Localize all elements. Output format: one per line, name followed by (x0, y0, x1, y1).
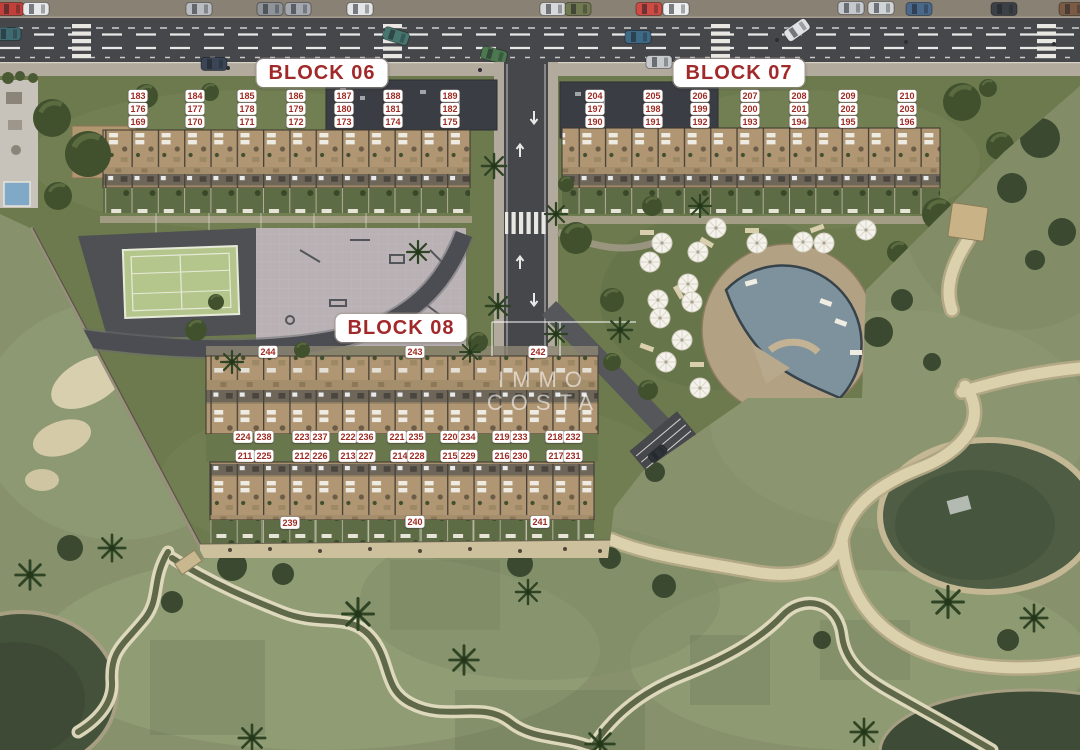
unit-chip-187[interactable]: 187 (334, 90, 353, 102)
unit-chip-206[interactable]: 206 (690, 90, 709, 102)
unit-chip-233[interactable]: 233 (510, 431, 529, 443)
unit-chip-198[interactable]: 198 (643, 103, 662, 115)
unit-chip-207[interactable]: 207 (740, 90, 759, 102)
unit-chip-170[interactable]: 170 (185, 116, 204, 128)
golf-hut (948, 203, 988, 242)
unit-chip-223[interactable]: 223 (292, 431, 311, 443)
unit-chip-227[interactable]: 227 (356, 450, 375, 462)
unit-chip-175[interactable]: 175 (440, 116, 459, 128)
unit-chip-183[interactable]: 183 (128, 90, 147, 102)
unit-chip-229[interactable]: 229 (458, 450, 477, 462)
unit-chip-228[interactable]: 228 (407, 450, 426, 462)
unit-chip-199[interactable]: 199 (690, 103, 709, 115)
unit-chip-225[interactable]: 225 (254, 450, 273, 462)
unit-chip-212[interactable]: 212 (292, 450, 311, 462)
site-plan-rendering (0, 0, 1080, 750)
unit-chip-179[interactable]: 179 (286, 103, 305, 115)
block-label-block07: BLOCK 07 (674, 59, 805, 87)
unit-chip-219[interactable]: 219 (492, 431, 511, 443)
unit-chip-237[interactable]: 237 (310, 431, 329, 443)
unit-chip-190[interactable]: 190 (585, 116, 604, 128)
unit-chip-235[interactable]: 235 (406, 431, 425, 443)
unit-chip-174[interactable]: 174 (383, 116, 402, 128)
block07-gardens (562, 188, 940, 214)
unit-chip-208[interactable]: 208 (789, 90, 808, 102)
unit-chip-192[interactable]: 192 (690, 116, 709, 128)
block07-row-houses (562, 128, 940, 188)
unit-chip-231[interactable]: 231 (563, 450, 582, 462)
unit-chip-184[interactable]: 184 (185, 90, 204, 102)
unit-chip-185[interactable]: 185 (237, 90, 256, 102)
unit-chip-224[interactable]: 224 (233, 431, 252, 443)
unit-chip-180[interactable]: 180 (334, 103, 353, 115)
unit-chip-230[interactable]: 230 (510, 450, 529, 462)
unit-chip-242[interactable]: 242 (528, 346, 547, 358)
unit-chip-178[interactable]: 178 (237, 103, 256, 115)
unit-chip-220[interactable]: 220 (440, 431, 459, 443)
unit-chip-201[interactable]: 201 (789, 103, 808, 115)
crosswalk (505, 212, 547, 234)
unit-chip-191[interactable]: 191 (643, 116, 662, 128)
unit-chip-177[interactable]: 177 (185, 103, 204, 115)
unit-chip-195[interactable]: 195 (838, 116, 857, 128)
unit-chip-181[interactable]: 181 (383, 103, 402, 115)
unit-chip-210[interactable]: 210 (897, 90, 916, 102)
block06-gardens (103, 188, 470, 213)
unit-chip-182[interactable]: 182 (440, 103, 459, 115)
unit-chip-215[interactable]: 215 (440, 450, 459, 462)
unit-chip-222[interactable]: 222 (338, 431, 357, 443)
unit-chip-244[interactable]: 244 (258, 346, 277, 358)
block08-lower-row (210, 462, 594, 520)
unit-chip-239[interactable]: 239 (280, 517, 299, 529)
unit-chip-203[interactable]: 203 (897, 103, 916, 115)
unit-chip-176[interactable]: 176 (128, 103, 147, 115)
unit-chip-243[interactable]: 243 (405, 346, 424, 358)
unit-chip-211[interactable]: 211 (236, 450, 255, 462)
unit-chip-204[interactable]: 204 (585, 90, 604, 102)
unit-chip-202[interactable]: 202 (838, 103, 857, 115)
unit-chip-226[interactable]: 226 (310, 450, 329, 462)
site-plan: BLOCK 0618318418518618718818917617717817… (0, 0, 1080, 750)
padel-court (78, 228, 260, 340)
unit-chip-200[interactable]: 200 (740, 103, 759, 115)
unit-chip-186[interactable]: 186 (286, 90, 305, 102)
unit-chip-238[interactable]: 238 (254, 431, 273, 443)
unit-chip-188[interactable]: 188 (383, 90, 402, 102)
unit-chip-213[interactable]: 213 (338, 450, 357, 462)
unit-chip-236[interactable]: 236 (356, 431, 375, 443)
unit-chip-197[interactable]: 197 (585, 103, 604, 115)
block06-row-houses (103, 130, 470, 188)
unit-chip-221[interactable]: 221 (387, 431, 406, 443)
unit-chip-196[interactable]: 196 (897, 116, 916, 128)
plaza (0, 71, 38, 208)
unit-chip-171[interactable]: 171 (237, 116, 256, 128)
plaza-pool (4, 182, 30, 206)
block08-upper-row (206, 356, 598, 434)
unit-chip-205[interactable]: 205 (643, 90, 662, 102)
unit-chip-240[interactable]: 240 (405, 516, 424, 528)
unit-chip-218[interactable]: 218 (545, 431, 564, 443)
unit-chip-232[interactable]: 232 (563, 431, 582, 443)
unit-chip-169[interactable]: 169 (128, 116, 147, 128)
unit-chip-216[interactable]: 216 (492, 450, 511, 462)
unit-chip-173[interactable]: 173 (334, 116, 353, 128)
unit-chip-172[interactable]: 172 (286, 116, 305, 128)
block-label-block06: BLOCK 06 (257, 59, 388, 87)
block-label-block08: BLOCK 08 (336, 314, 467, 342)
unit-chip-209[interactable]: 209 (838, 90, 857, 102)
unit-chip-241[interactable]: 241 (530, 516, 549, 528)
unit-chip-194[interactable]: 194 (789, 116, 808, 128)
unit-chip-193[interactable]: 193 (740, 116, 759, 128)
unit-chip-234[interactable]: 234 (458, 431, 477, 443)
unit-chip-189[interactable]: 189 (440, 90, 459, 102)
